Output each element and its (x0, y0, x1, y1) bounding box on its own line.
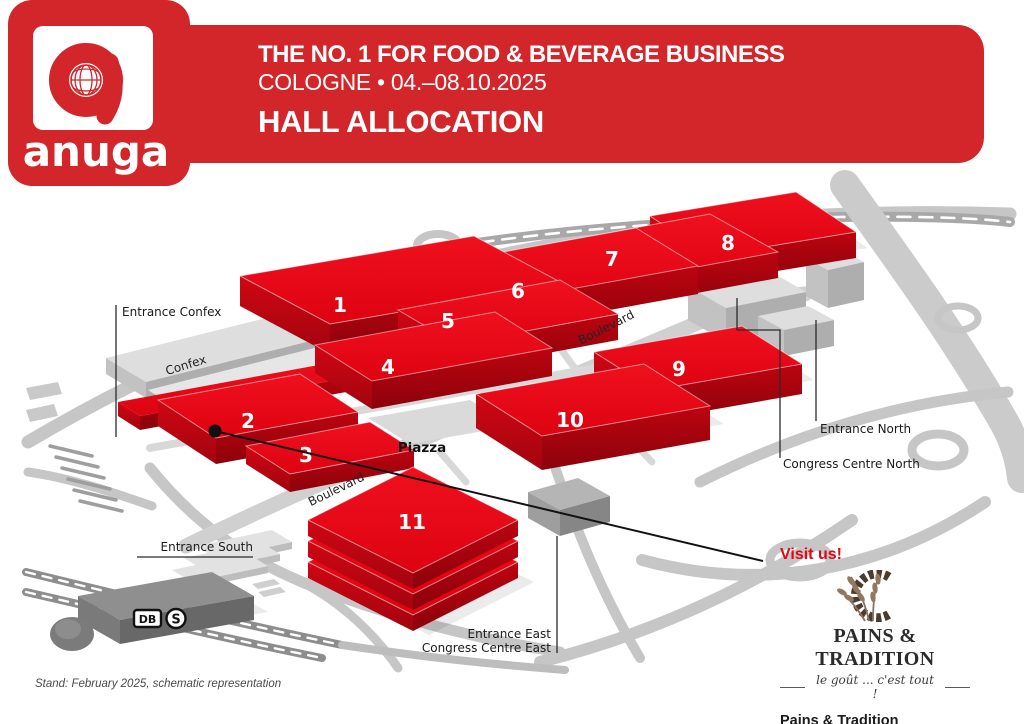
stand-dot (209, 425, 222, 438)
hall-2-number: 2 (241, 409, 255, 433)
anuga-logo: anuga (0, 0, 192, 190)
anuga-wordmark: anuga (23, 127, 170, 176)
label-entrance-south: Entrance South (161, 540, 253, 554)
label-congress-centre-east: Congress Centre East (422, 641, 551, 655)
globe-icon (71, 65, 101, 95)
tagline-dash-right (945, 687, 970, 688)
hall-10-number: 10 (556, 408, 584, 432)
hall-allocation-flyer: THE NO. 1 FOR FOOD & BEVERAGE BUSINESS C… (0, 0, 1024, 724)
svg-text:S: S (171, 613, 180, 628)
entrance-east-building (528, 478, 610, 536)
hall-3-number: 3 (299, 443, 313, 467)
hall-8-number: 8 (721, 231, 735, 255)
label-piazza: Piazza (398, 440, 446, 456)
hall-6-number: 6 (511, 279, 525, 303)
hall-11-number: 11 (398, 510, 426, 534)
west-road (28, 472, 152, 506)
sbahn-logo: S (167, 609, 186, 628)
tagline-dash-left (780, 687, 805, 688)
schematic-note: Stand: February 2025, schematic represen… (35, 678, 281, 690)
hall-4-number: 4 (381, 355, 395, 379)
pains-tradition-logo-icon (780, 570, 970, 622)
hall-7-number: 7 (605, 247, 619, 271)
sponsor-name: Pains & Tradition (780, 713, 1018, 724)
hall-5-number: 5 (441, 309, 455, 333)
hall-1-number: 1 (333, 293, 347, 317)
label-entrance-confex: Entrance Confex (122, 305, 221, 319)
west-platform-1 (26, 382, 62, 400)
pains-tradition-tagline: le goût ... c'est tout ! (813, 673, 936, 701)
sponsor-block: Visit us! (780, 546, 1018, 724)
visit-us-label: Visit us! (780, 546, 1018, 564)
label-entrance-east: Entrance East (468, 627, 552, 641)
hall-9-number: 9 (672, 357, 686, 381)
db-logo: DB (134, 610, 161, 627)
west-platform-2 (26, 404, 58, 422)
svg-text:DB: DB (139, 613, 157, 626)
label-entrance-north: Entrance North (820, 422, 911, 436)
label-congress-centre-north: Congress Centre North (783, 457, 920, 471)
pains-tradition-wordmark: PAINS & TRADITION (780, 625, 970, 671)
